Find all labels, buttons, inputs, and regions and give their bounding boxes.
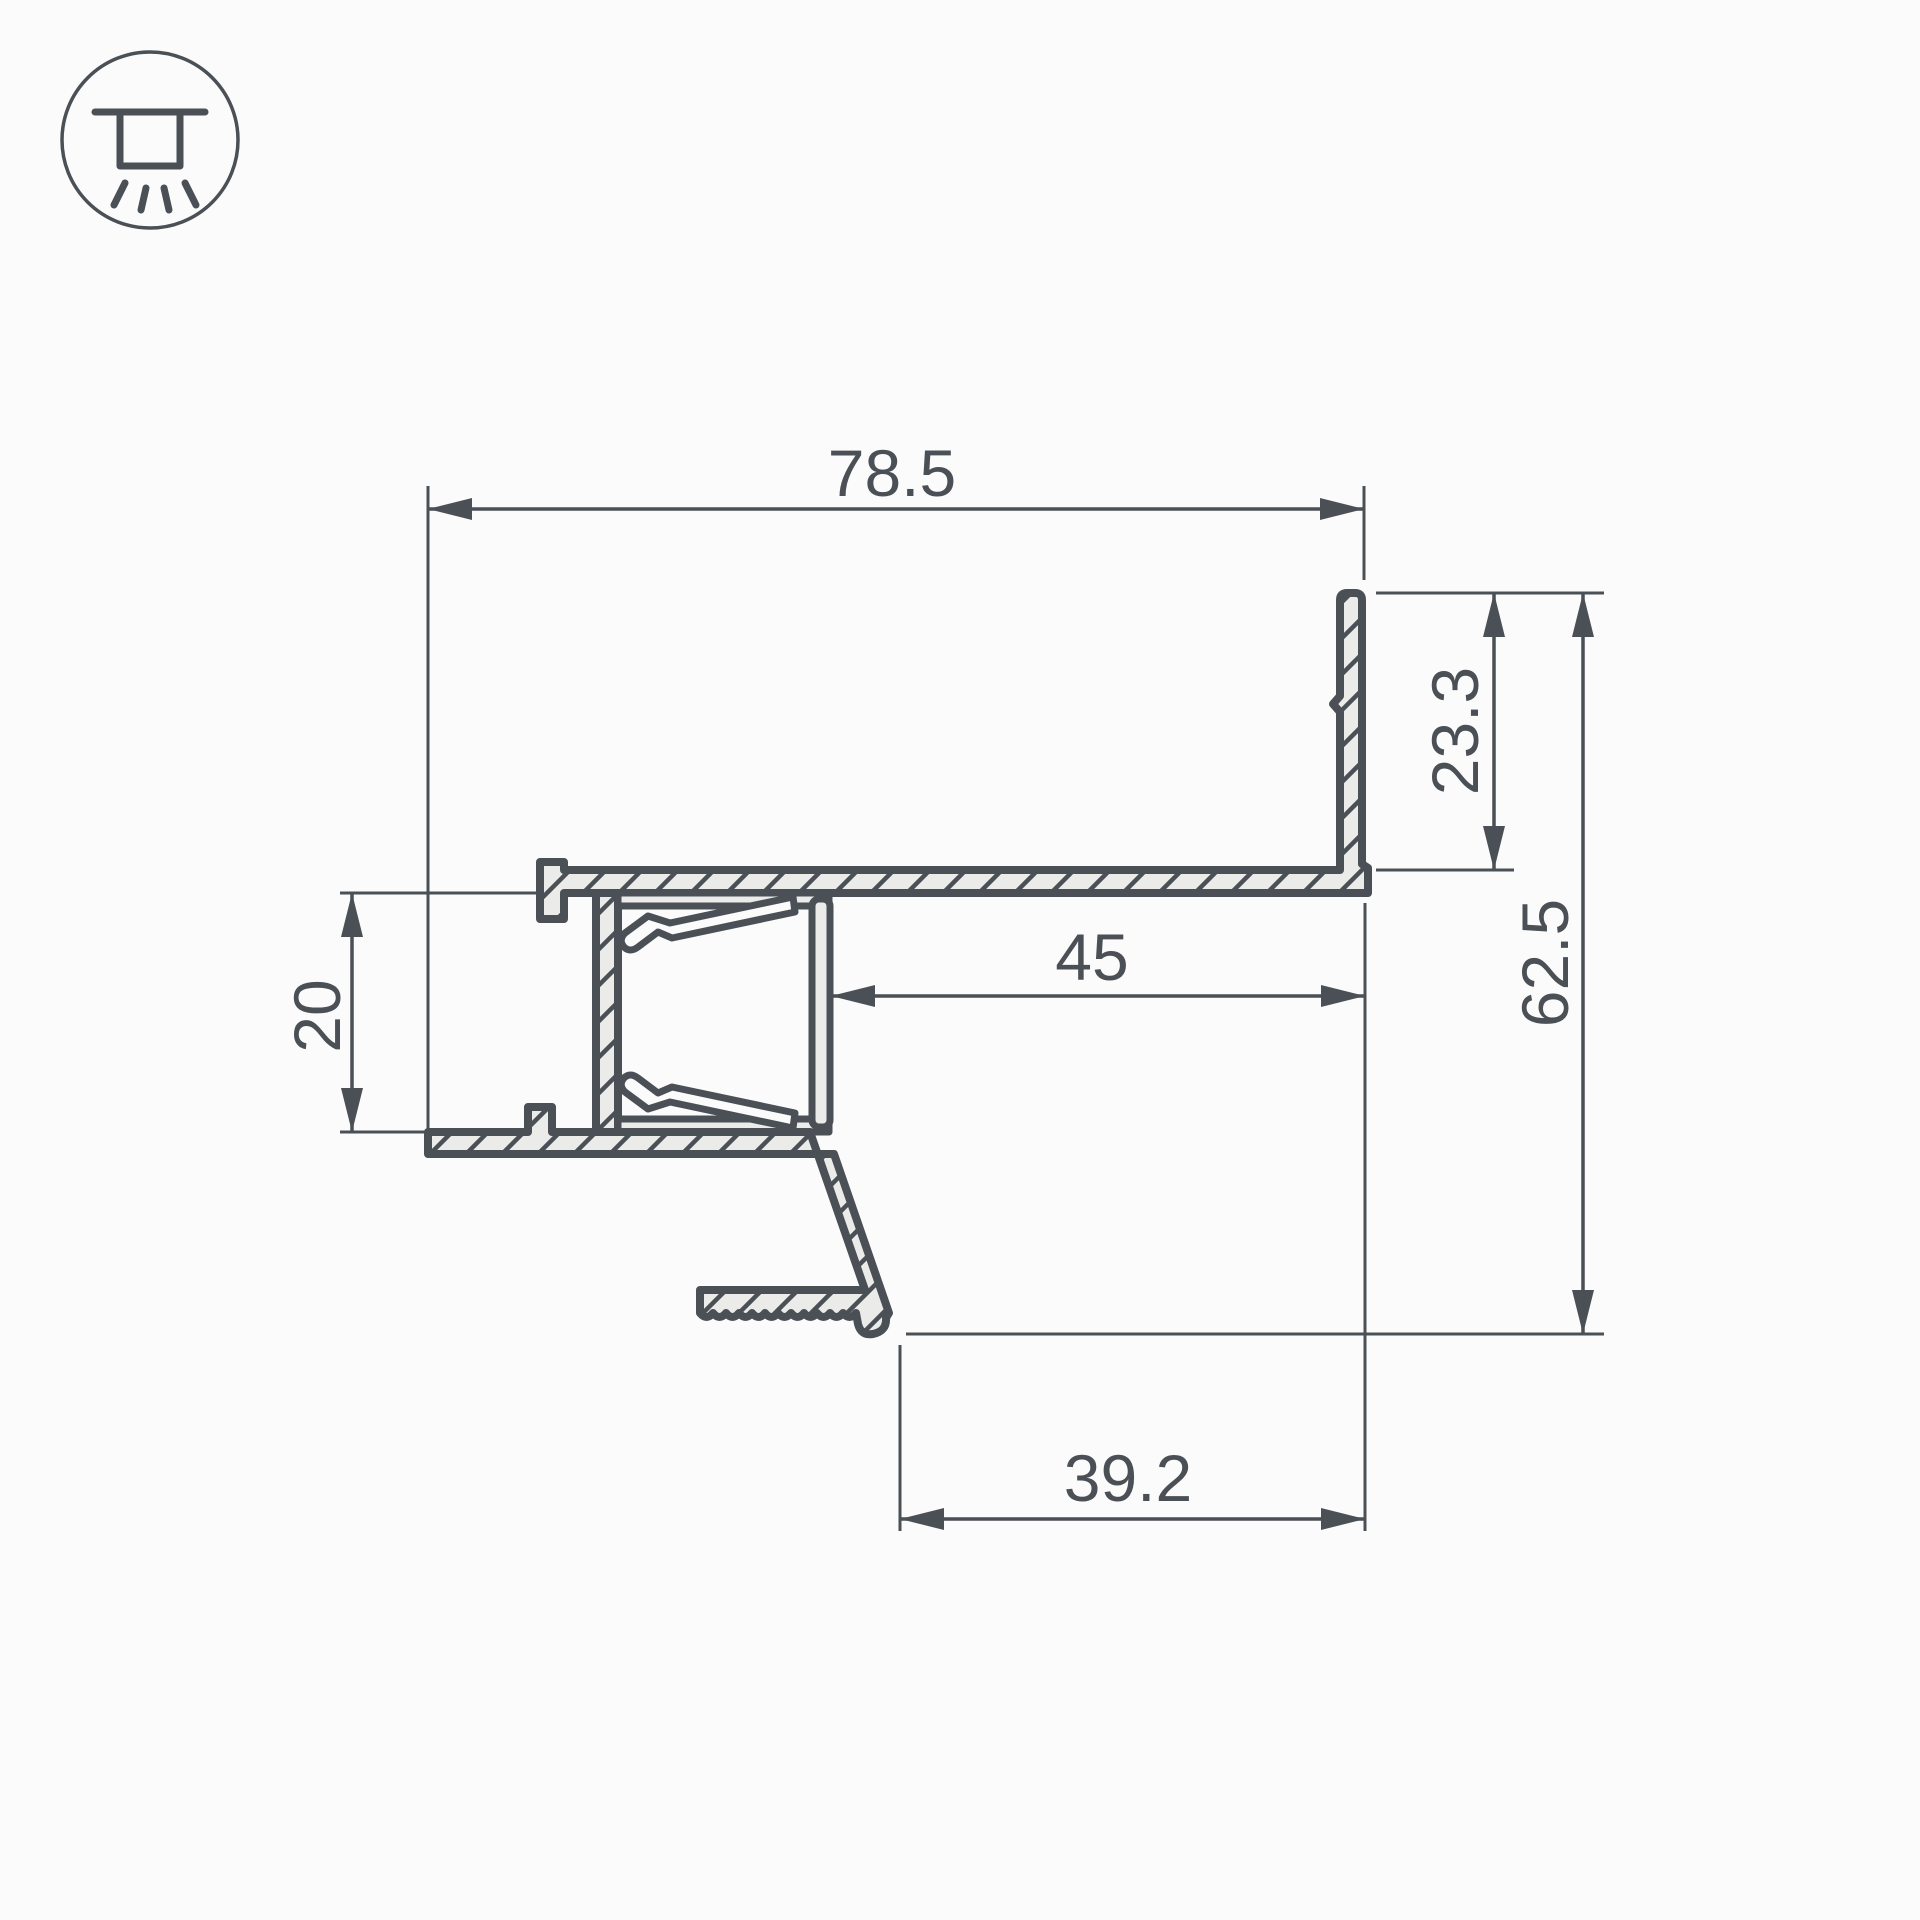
- technical-drawing-canvas: 78.5 23.3 62.5 45 20: [0, 0, 1920, 1920]
- hatch-channel-wall: [596, 893, 618, 1132]
- dimension-label-23-3: 23.3: [1418, 667, 1492, 795]
- dimension-label-45: 45: [1055, 920, 1128, 994]
- channel-left-wall: [596, 893, 618, 1132]
- diffuser-cover: [812, 899, 830, 1127]
- drawing-background: [0, 0, 1920, 1920]
- dimension-label-78-5: 78.5: [828, 436, 956, 510]
- dimension-label-20: 20: [280, 979, 354, 1052]
- dimension-label-62-5: 62.5: [1508, 899, 1582, 1027]
- dimension-label-39-2: 39.2: [1064, 1441, 1192, 1515]
